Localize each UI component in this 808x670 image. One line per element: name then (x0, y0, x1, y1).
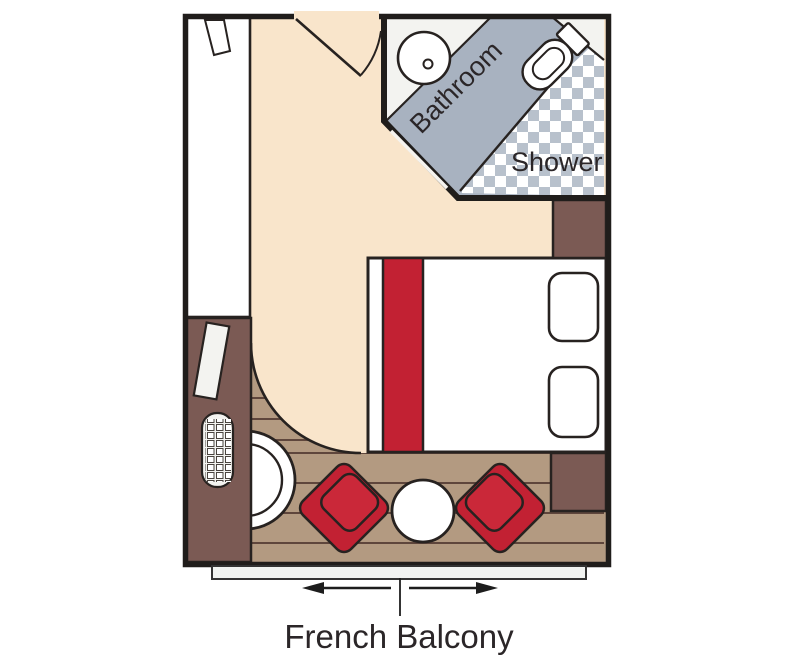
width-annotation (302, 578, 498, 616)
french-balcony-label: French Balcony (284, 618, 514, 655)
pillow (549, 273, 598, 341)
shower-label: Shower (511, 147, 603, 177)
nightstand (553, 200, 606, 258)
minibar-grid (202, 413, 233, 487)
arrow-left-icon (302, 582, 324, 594)
floor-plan-drawing: Bathroom Shower French Balcony (0, 0, 808, 670)
stateroom-floor-plan: Bathroom Shower French Balcony (0, 0, 808, 670)
pillow (549, 367, 598, 437)
balcony-rail (212, 566, 586, 579)
sink (398, 32, 450, 84)
bed (368, 258, 606, 452)
balcony-table (392, 480, 454, 542)
arrow-right-icon (476, 582, 498, 594)
deck-cabinet (551, 453, 606, 511)
wardrobe (186, 16, 250, 317)
bed-runner (383, 258, 423, 452)
door-opening (294, 11, 379, 22)
desk-unit (186, 318, 251, 562)
